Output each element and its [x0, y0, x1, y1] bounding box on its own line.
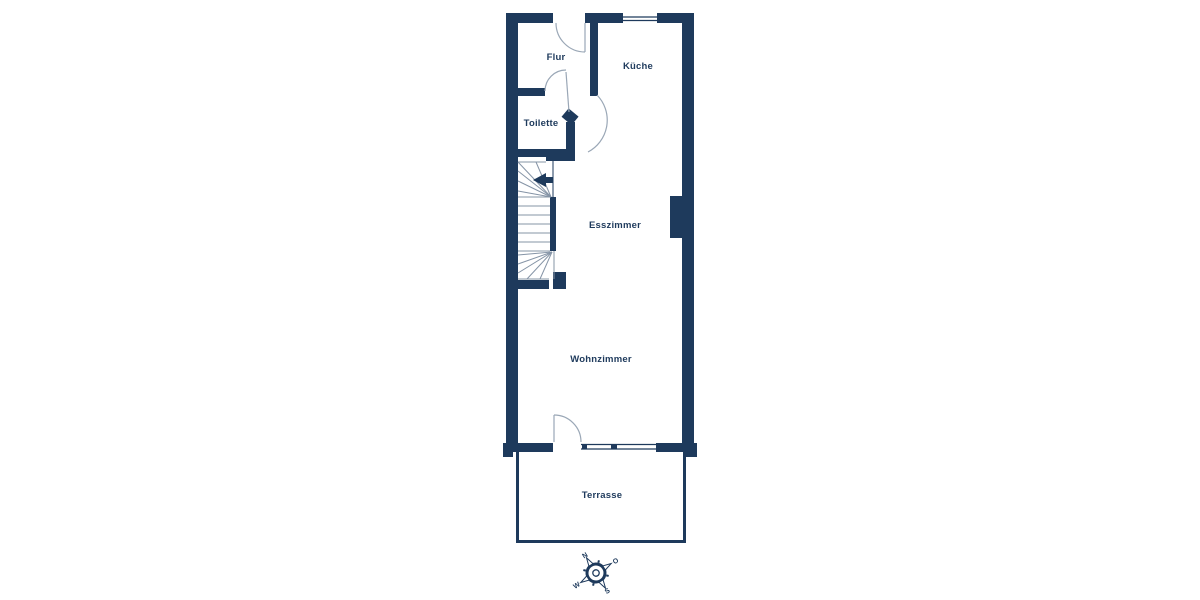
wall-left	[506, 13, 518, 452]
wall-stair-bottom	[508, 280, 549, 289]
room-label-kueche: Küche	[623, 61, 653, 72]
wall-toilette-east	[566, 122, 575, 153]
flur-esszimmer-door-icon	[588, 95, 607, 152]
wall-toilette-bottom	[518, 149, 546, 157]
sliding-door-tick	[611, 444, 617, 449]
floorplan-canvas: Flur Küche Toilette Esszimmer Wohnzimmer…	[0, 0, 1200, 600]
wohnzimmer-terrace-door-icon	[554, 415, 581, 442]
entrance-door-icon	[556, 23, 585, 52]
wall-flur-kueche-divider	[590, 23, 598, 96]
compass-label-south: S	[604, 587, 612, 596]
room-label-toilette: Toilette	[524, 118, 559, 129]
wall-stair-top	[546, 149, 575, 161]
interior-walls	[508, 23, 683, 289]
room-label-wohnzimmer: Wohnzimmer	[570, 354, 632, 365]
outer-walls	[503, 13, 697, 457]
room-label-esszimmer: Esszimmer	[589, 220, 641, 231]
terrace-sliding-door-icon	[581, 444, 656, 449]
compass-rose-icon: N O S W	[561, 539, 632, 600]
wall-right	[682, 13, 694, 452]
room-labels: Flur Küche Toilette Esszimmer Wohnzimmer…	[524, 52, 653, 501]
wall-top-mid	[585, 13, 623, 23]
toilette-door-icon	[545, 70, 569, 112]
room-label-terrasse: Terrasse	[582, 490, 623, 501]
stair-treads	[518, 197, 550, 251]
door-post	[562, 108, 579, 125]
stair-winders-lower	[518, 252, 552, 279]
wall-bottom-left-nub	[503, 443, 513, 457]
compass-label-east: O	[612, 557, 621, 566]
wall-stair-bottom-stub	[553, 272, 566, 289]
wall-stair-spine	[550, 197, 556, 251]
chimney-block	[670, 196, 683, 238]
kitchen-window-icon	[623, 17, 657, 21]
sliding-door-tick	[582, 444, 587, 449]
staircase	[518, 161, 554, 279]
wall-toilette-top	[518, 88, 545, 96]
room-label-flur: Flur	[547, 52, 566, 63]
